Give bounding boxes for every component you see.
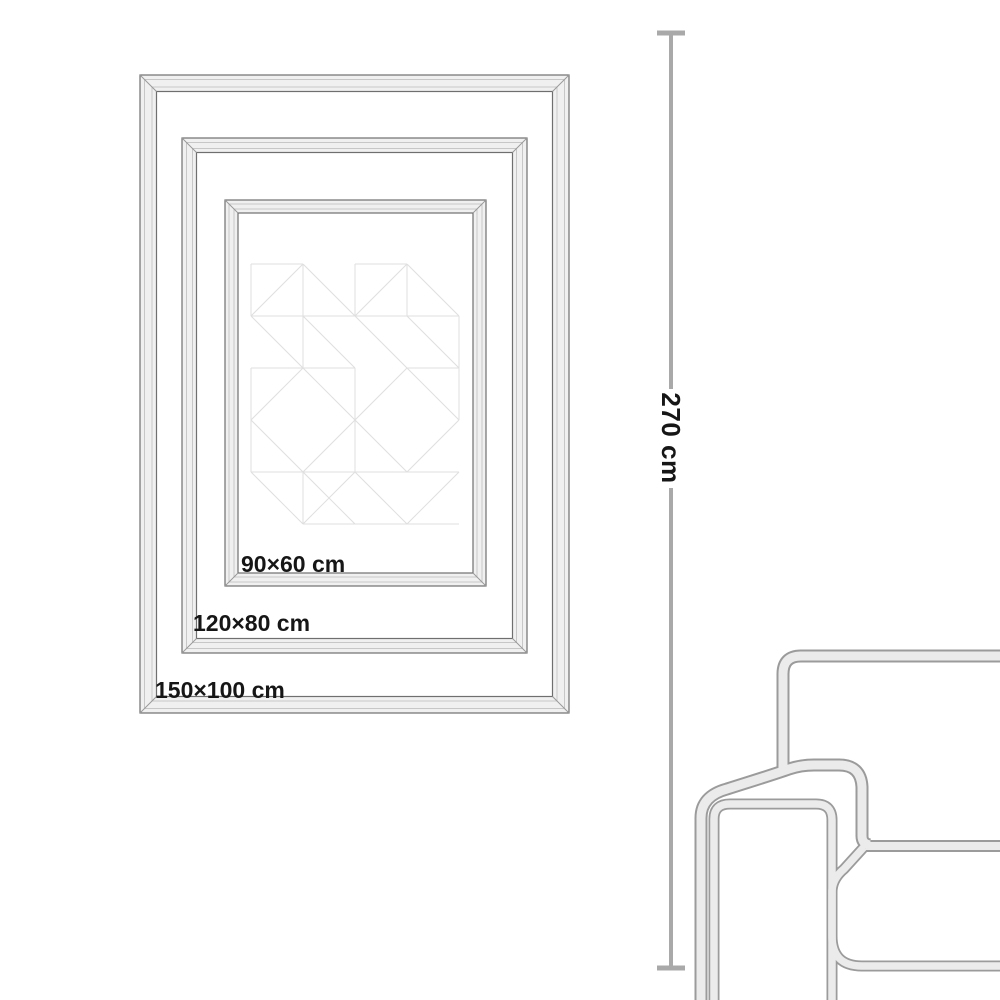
dimension-label: 270 cm (656, 392, 686, 483)
size-guide-canvas: 90×60 cm 120×80 cm 150×100 cm 270 cm (0, 0, 1000, 1000)
size-guide-illustration: 90×60 cm 120×80 cm 150×100 cm 270 cm (0, 0, 1000, 1000)
height-dimension: 270 cm (656, 33, 686, 968)
sofa-seat-cushion-fill (832, 847, 1000, 966)
size-label-150x100: 150×100 cm (155, 677, 285, 703)
sofa-fills (701, 656, 1000, 1000)
sofa-armrest-front-panel-fill (714, 804, 832, 1000)
sofa-armrest-front-panel (714, 804, 832, 1000)
size-label-120x80: 120×80 cm (193, 610, 310, 636)
sofa-backrest-fill (783, 656, 1000, 770)
sofa-backrest (783, 656, 1000, 770)
sofa-edges (701, 656, 1000, 1000)
sofa-seat-cushion-edge (832, 847, 1000, 966)
sofa-outline (701, 656, 1000, 1000)
size-label-90x60: 90×60 cm (241, 551, 345, 577)
